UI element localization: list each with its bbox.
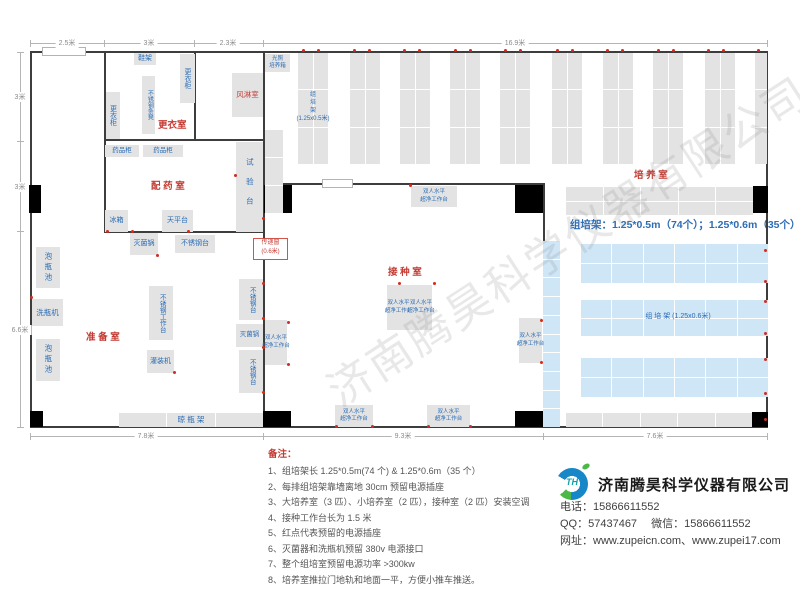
rack-cell (543, 335, 560, 353)
culture-rack (552, 53, 582, 164)
rack-cell (705, 90, 720, 126)
rack-cell (350, 128, 365, 164)
power-outlet-dot (30, 296, 33, 299)
equipment-label-line: 双人水平 (265, 335, 287, 342)
dimension-label: 3米 (12, 182, 29, 192)
rack-cell (466, 53, 481, 89)
rack-cell (603, 128, 618, 164)
rack-cell (603, 413, 639, 427)
rack-cell (568, 128, 583, 164)
rack-cell (298, 128, 313, 164)
rack-cell (721, 128, 736, 164)
rack-cell (706, 378, 736, 397)
door-marker (30, 411, 43, 427)
equipment-label-line: 双人水平 (387, 300, 409, 307)
equipment-label-line: 培养箱 (269, 63, 286, 70)
door-marker (263, 411, 291, 427)
power-outlet-dot (469, 425, 472, 428)
room-label: 培 养 室 (634, 167, 668, 181)
equipment-label: 双人水平超净工作台 (519, 318, 542, 363)
company-logo: TH (554, 464, 592, 502)
rack-cell (543, 372, 560, 390)
rack-cell (705, 128, 720, 164)
power-outlet-dot (262, 217, 265, 220)
power-outlet-dot (131, 230, 134, 233)
rack-cell (678, 413, 714, 427)
note-item: 2、每排组培架靠墙离地 30cm 预留电源插座 (268, 480, 558, 496)
rack-cell (755, 128, 767, 164)
power-outlet-dot (262, 391, 265, 394)
equipment-label: 试验台 (236, 142, 263, 232)
power-outlet-dot (262, 317, 265, 320)
rack-cell (738, 244, 768, 263)
power-outlet-dot (317, 49, 320, 52)
equipment-label: 风淋室 (232, 73, 263, 117)
note-item: 1、组培架长 1.25*0.5m(74 个) & 1.25*0.6m（35 个） (268, 464, 558, 480)
rack-cell (552, 128, 567, 164)
equipment-label: 不锈钢台 (239, 279, 263, 320)
rack-cell (669, 53, 684, 89)
equipment-label-line: 双人水平 (437, 409, 459, 416)
rack-cell (705, 53, 720, 89)
culture-rack (755, 53, 767, 164)
power-outlet-dot (398, 282, 401, 285)
rack-cell (619, 53, 634, 89)
culture-rack (566, 413, 752, 427)
dimension-tick (17, 231, 24, 232)
dimension-tick (104, 40, 105, 47)
power-outlet-dot (409, 184, 412, 187)
notes-title: 备注： (268, 446, 558, 460)
logo-leaf-icon (581, 462, 590, 470)
rack-cell (466, 90, 481, 126)
equipment-label-line: 超净工作台 (420, 197, 448, 204)
dimension-label: 9.3米 (392, 431, 415, 441)
rack-cell (706, 244, 736, 263)
rack-cell (653, 53, 668, 89)
company-qq-wechat: QQ：57437467 微信：15866611552 (560, 515, 751, 531)
rack-cell (612, 264, 642, 283)
dimension-label: 2.3米 (217, 38, 240, 48)
equipment-label-line: 双人水平 (423, 189, 445, 196)
rack-cell (450, 90, 465, 126)
equipment-label-line: 双人水平 (519, 333, 541, 340)
dimension-tick (767, 433, 768, 440)
rack-cell (706, 264, 736, 283)
rack-cell (675, 244, 705, 263)
dimension-tick (767, 40, 768, 47)
pass-window-label: 传递窗 (254, 239, 287, 248)
power-outlet-dot (262, 282, 265, 285)
power-outlet-dot (302, 49, 305, 52)
rack-cell (716, 202, 753, 216)
door-marker (515, 185, 543, 213)
rack-cell (543, 353, 560, 371)
equipment-label: 灌装机 (147, 350, 174, 373)
rack-cell (644, 358, 674, 377)
rack-cell (400, 53, 415, 89)
rack-cell (675, 358, 705, 377)
dimension-label: 6.6米 (9, 325, 32, 335)
rack-cell (679, 202, 716, 216)
power-outlet-dot (764, 418, 767, 421)
power-outlet-dot (106, 230, 109, 233)
door-marker (515, 411, 543, 427)
equipment-label: 双人水平超净工作台 (410, 285, 432, 330)
room-label: 接 种 室 (388, 264, 422, 278)
rack-cell (543, 241, 560, 259)
power-outlet-dot (368, 49, 371, 52)
company-name: 济南腾昊科学仪器有限公司 (598, 474, 790, 495)
equipment-label-line: 双人水平 (343, 409, 365, 416)
rack-cell (603, 53, 618, 89)
power-outlet-dot (427, 425, 430, 428)
rack-cell (568, 90, 583, 126)
dimension-tick (263, 40, 264, 47)
rack-cell (612, 244, 642, 263)
power-outlet-dot (540, 361, 543, 364)
wall (263, 183, 544, 185)
equipment-label: 泡瓶池 (36, 247, 60, 288)
rack-cell (604, 202, 641, 216)
logo-letters: TH (566, 477, 578, 487)
rack-cell (350, 90, 365, 126)
rack-cell (516, 90, 531, 126)
rack-cell (738, 358, 768, 377)
notes: 备注： 1、组培架长 1.25*0.5m(74 个) & 1.25*0.6m（3… (268, 446, 558, 588)
rack-cell (644, 378, 674, 397)
rack-cell (716, 413, 752, 427)
rack-cell (566, 187, 603, 201)
dimension-tick (30, 40, 31, 47)
culture-rack (350, 53, 380, 164)
rack-cell (641, 413, 677, 427)
dimension-label: 7.8米 (135, 431, 158, 441)
rack-cell (581, 378, 611, 397)
culture-rack (581, 358, 768, 397)
dimension-tick (194, 40, 195, 47)
power-outlet-dot (757, 49, 760, 52)
rack-cell (350, 53, 365, 89)
rack-cell (366, 90, 381, 126)
power-outlet-dot (234, 174, 237, 177)
power-outlet-dot (764, 280, 767, 283)
equipment-label-line: 双人水平 (410, 300, 432, 307)
rack-cell (543, 391, 560, 409)
rack-cell (314, 128, 329, 164)
rack-cell (755, 53, 767, 89)
equipment-label: 双人水平超净工作台 (265, 320, 287, 365)
rack-cell (755, 90, 767, 126)
rack-cell (265, 158, 283, 185)
equipment-label-line: 架 (310, 108, 316, 116)
equipment-label: 组 培 架 (1.25x0.6米) (598, 310, 758, 323)
culture-rack (653, 53, 683, 164)
rack-cell (400, 128, 415, 164)
equipment-label: 不锈钢工作台 (149, 286, 173, 340)
rack-cell (450, 53, 465, 89)
door-marker (29, 185, 41, 213)
rack-cell (566, 413, 602, 427)
rack-cell (366, 128, 381, 164)
rack-cell (416, 90, 431, 126)
equipment-label: 天平台 (162, 210, 193, 232)
power-outlet-dot (469, 49, 472, 52)
rack-cell (644, 264, 674, 283)
equipment-label-line: 培 (310, 100, 316, 108)
power-outlet-dot (504, 49, 507, 52)
power-outlet-dot (556, 49, 559, 52)
rack-cell (543, 316, 560, 334)
door-marker (753, 186, 768, 213)
rack-cell (543, 278, 560, 296)
equipment-label: 不锈钢台 (175, 235, 215, 253)
power-outlet-dot (764, 332, 767, 335)
equipment-label: 更衣柜 (106, 92, 120, 139)
equipment-label-line: 超净工作台 (340, 416, 368, 423)
power-outlet-dot (287, 321, 290, 324)
equipment-label-line: 超净工作台 (517, 341, 545, 348)
rack-cell (603, 90, 618, 126)
rack-cell (400, 90, 415, 126)
power-outlet-dot (540, 319, 543, 322)
room-label: 配 药 室 (151, 178, 185, 192)
wall (104, 51, 106, 232)
notes-list: 1、组培架长 1.25*0.5m(74 个) & 1.25*0.6m（35 个）… (268, 464, 558, 588)
rack-cell (500, 128, 515, 164)
room-label: 更衣室 (158, 117, 187, 131)
rack-cell (619, 128, 634, 164)
rack-cell (298, 53, 313, 89)
dimension-tick (17, 141, 24, 142)
rack-cell (265, 186, 283, 213)
equipment-label: 洗瓶机 (32, 299, 63, 326)
culture-rack (500, 53, 530, 164)
rack-cell (581, 358, 611, 377)
equipment-label: 双人水平超净工作台 (411, 186, 457, 207)
power-outlet-dot (418, 49, 421, 52)
rack-cell (466, 128, 481, 164)
rack-cell (516, 53, 531, 89)
equipment-label: 灭菌锅 (236, 324, 263, 347)
power-outlet-dot (764, 358, 767, 361)
culture-rack (450, 53, 480, 164)
wall-opening (322, 179, 353, 188)
rack-cell (619, 90, 634, 126)
rack-cell (706, 358, 736, 377)
rack-cell (721, 90, 736, 126)
power-outlet-dot (764, 300, 767, 303)
power-outlet-dot (707, 49, 710, 52)
power-outlet-dot (262, 346, 265, 349)
power-outlet-dot (519, 49, 522, 52)
equipment-label: 更衣柜 (180, 54, 195, 103)
rack-cell (641, 187, 678, 201)
power-outlet-dot (606, 49, 609, 52)
note-item: 7、整个组培室预留电源功率 >300kw (268, 557, 558, 573)
rack-cell (566, 202, 603, 216)
rack-cell (543, 297, 560, 315)
equipment-label: 鞋架 (134, 53, 156, 65)
culture-rack (581, 244, 768, 283)
rack-cell (581, 264, 611, 283)
dimension-tick (30, 433, 31, 440)
culture-rack (543, 241, 560, 427)
equipment-label: 泡瓶池 (36, 339, 60, 381)
dimension-label: 3米 (141, 38, 158, 48)
rack-cell (568, 53, 583, 89)
rack-cell (543, 409, 560, 427)
rack-cell (416, 128, 431, 164)
culture-rack (705, 53, 735, 164)
equipment-label-line: 超净工作台 (407, 308, 435, 315)
power-outlet-dot (173, 371, 176, 374)
dimension-label: 7.6米 (644, 431, 667, 441)
rack-cell (612, 378, 642, 397)
rack-cell (604, 187, 641, 201)
company-phone: 电话：15866611552 (560, 498, 659, 514)
rack-cell (265, 130, 283, 157)
note-item: 6、灭菌器和洗瓶机预留 380v 电源接口 (268, 542, 558, 558)
equipment-label: 双人水平超净工作台 (427, 405, 470, 427)
rack-cell (581, 244, 611, 263)
rack-cell (543, 260, 560, 278)
dimension-tick (17, 427, 24, 428)
wall-opening (42, 47, 86, 56)
rack-cell (721, 53, 736, 89)
equipment-label-line: 超净工作台 (435, 416, 463, 423)
rack-cell (653, 90, 668, 126)
rack-cell (314, 53, 329, 89)
power-outlet-dot (156, 254, 159, 257)
rack-cell (450, 128, 465, 164)
power-outlet-dot (371, 425, 374, 428)
note-item: 8、培养室推拉门地轨和地面一平，方便小推车推送。 (268, 573, 558, 589)
rack-cell (500, 90, 515, 126)
culture-rack (566, 187, 753, 215)
rack-cell (669, 90, 684, 126)
room-label: 准 备 室 (86, 329, 120, 343)
power-outlet-dot (672, 49, 675, 52)
equipment-label: 不锈钢条凳 (142, 76, 155, 134)
equipment-label: 晾 瓶 架 (119, 413, 263, 427)
culture-rack (603, 53, 633, 164)
equipment-label: 灭菌锅 (130, 233, 158, 255)
rack-cell (675, 264, 705, 283)
pass-window-size: (0.6米) (254, 248, 287, 257)
power-outlet-dot (353, 49, 356, 52)
equipment-label: 双人水平超净工作台 (335, 405, 373, 427)
equipment-label-line: 超净工作台 (262, 343, 290, 350)
company-website: 网址：www.zupeicn.com、www.zupei17.com (560, 532, 781, 548)
dimension-tick (17, 52, 24, 53)
culture-rack (400, 53, 430, 164)
power-outlet-dot (657, 49, 660, 52)
power-outlet-dot (454, 49, 457, 52)
rack-cell (516, 128, 531, 164)
equipment-label: 光照培养箱 (265, 54, 290, 72)
power-outlet-dot (764, 249, 767, 252)
equipment-label-line: (1.25x0.5米) (296, 116, 329, 124)
pass-window: 传递窗 (0.6米) (253, 238, 288, 260)
rack-cell (366, 53, 381, 89)
rack-cell (653, 128, 668, 164)
note-item: 5、红点代表预留的电源插座 (268, 526, 558, 542)
culture-rack (265, 130, 283, 213)
equipment-label: 药品柜 (105, 145, 139, 157)
rack-cell (612, 358, 642, 377)
equipment-label: 药品柜 (143, 145, 183, 157)
rack-cell (552, 53, 567, 89)
rack-cell (716, 187, 753, 201)
dimension-tick (263, 433, 264, 440)
rack-cell (679, 187, 716, 201)
power-outlet-dot (287, 363, 290, 366)
rack-cell (416, 53, 431, 89)
power-outlet-dot (621, 49, 624, 52)
rack-cell (675, 378, 705, 397)
power-outlet-dot (403, 49, 406, 52)
wall (30, 51, 32, 428)
dimension-label: 16.9米 (502, 38, 529, 48)
floor-plan: 济南腾昊科学仪器有限公司 传递窗 (0.6米) 组培架：1.25*0.5m（74… (0, 0, 800, 600)
power-outlet-dot (335, 425, 338, 428)
rack-cell (552, 90, 567, 126)
dimension-label: 3米 (12, 92, 29, 102)
dimension-line (20, 52, 21, 428)
note-item: 3、大培养室（3 匹）、小培养室（2 匹），接种室（2 匹）安装空调 (268, 495, 558, 511)
equipment-label-line: 光照 (272, 56, 283, 63)
power-outlet-dot (764, 392, 767, 395)
equipment-label: 冰箱 (105, 210, 128, 232)
rack-cell (500, 53, 515, 89)
dimension-tick (543, 433, 544, 440)
note-item: 4、接种工作台长为 1.5 米 (268, 511, 558, 527)
equipment-label: 组培架(1.25x0.5米) (291, 85, 335, 131)
wall (104, 139, 264, 141)
power-outlet-dot (187, 230, 190, 233)
rack-cell (641, 202, 678, 216)
dimension-label: 2.5米 (56, 38, 79, 48)
power-outlet-dot (571, 49, 574, 52)
power-outlet-dot (722, 49, 725, 52)
rack-cell (669, 128, 684, 164)
equipment-label: 不锈钢台 (239, 350, 263, 393)
rack-cell (644, 244, 674, 263)
power-outlet-dot (433, 282, 436, 285)
